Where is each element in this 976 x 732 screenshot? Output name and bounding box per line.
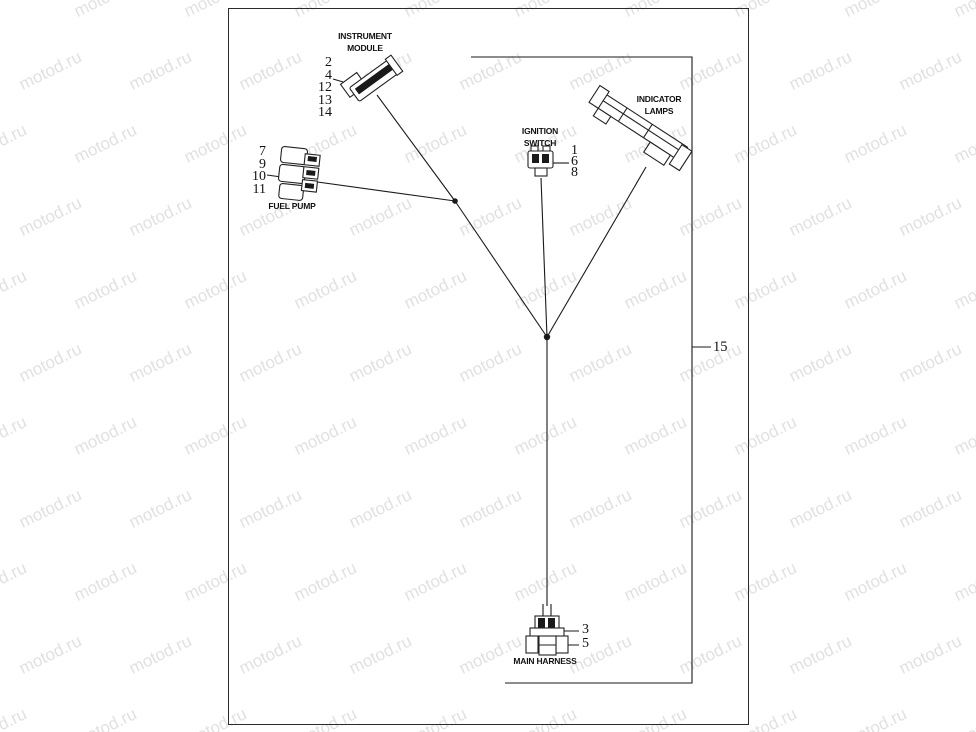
callout-number: 11 bbox=[240, 184, 266, 197]
ignition-switch-label-line1: IGNITION bbox=[509, 126, 571, 138]
callout-number: 8 bbox=[571, 167, 591, 178]
wire-junction-a-to-b bbox=[455, 201, 547, 337]
ignition-switch-label-line2: SWITCH bbox=[509, 138, 571, 150]
ignition-switch-callout-numbers: 1 6 8 bbox=[571, 145, 591, 178]
main-harness-label: MAIN HARNESS bbox=[511, 656, 579, 668]
indicator-lamps-label-line1: INDICATOR bbox=[628, 94, 690, 106]
main-harness-connector-art bbox=[526, 616, 568, 655]
wiring-diagram-canvas bbox=[0, 0, 976, 732]
fuel-pump-connector-art bbox=[276, 146, 320, 202]
indicator-lamps-label: INDICATOR LAMPS bbox=[628, 94, 690, 117]
instrument-module-connector-art bbox=[341, 50, 403, 105]
ignition-switch-connector-art bbox=[528, 146, 553, 176]
junction-dot-b bbox=[544, 334, 550, 340]
wire-lamps-to-junction bbox=[547, 167, 646, 337]
ignition-switch-label: IGNITION SWITCH bbox=[509, 126, 571, 149]
callout-number: 5 bbox=[582, 637, 602, 651]
fuel-pump-label: FUEL PUMP bbox=[262, 201, 322, 213]
instrument-module-label-line2: MODULE bbox=[331, 43, 399, 55]
junction-dot-a bbox=[452, 198, 458, 204]
indicator-lamps-label-line2: LAMPS bbox=[628, 106, 690, 118]
wire-ignition-to-junction bbox=[541, 178, 547, 337]
main-harness-callout-numbers: 3 5 bbox=[582, 623, 602, 650]
instrument-module-label: INSTRUMENT MODULE bbox=[331, 31, 399, 54]
wire-instrument-to-junction bbox=[377, 95, 455, 201]
instrument-module-callout-numbers: 2 4 12 13 14 bbox=[300, 57, 332, 120]
callout-number: 14 bbox=[300, 107, 332, 120]
harness-assembly-callout-number: 15 bbox=[713, 339, 728, 356]
fuel-pump-callout-numbers: 7 9 10 11 bbox=[240, 146, 266, 196]
parts-diagram-page: motod.rumotod.rumotod.rumotod.rumotod.ru… bbox=[0, 0, 976, 732]
instrument-module-label-line1: INSTRUMENT bbox=[331, 31, 399, 43]
callout-number: 3 bbox=[582, 623, 602, 637]
